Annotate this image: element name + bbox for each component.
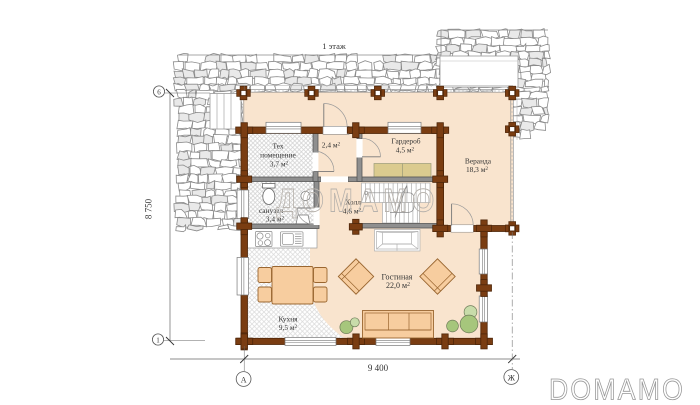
svg-text:1: 1 (156, 336, 160, 344)
svg-text:Тех: Тех (272, 142, 283, 151)
svg-text:8 750: 8 750 (144, 198, 154, 219)
svg-text:6: 6 (157, 88, 161, 96)
svg-text:18,3 м2: 18,3 м2 (466, 165, 488, 174)
svg-text:22,0 м2: 22,0 м2 (386, 281, 410, 290)
svg-text:9 400: 9 400 (368, 363, 389, 373)
svg-text:ДОМАМО: ДОМАМО (277, 183, 440, 219)
svg-text:1 этаж: 1 этаж (322, 41, 346, 51)
svg-text:DOMAMO: DOMAMO (549, 374, 685, 405)
svg-text:А: А (241, 375, 247, 384)
svg-text:помещение: помещение (260, 151, 296, 160)
svg-text:Ж: Ж (508, 373, 516, 382)
svg-text:Гардероб: Гардероб (391, 137, 420, 146)
